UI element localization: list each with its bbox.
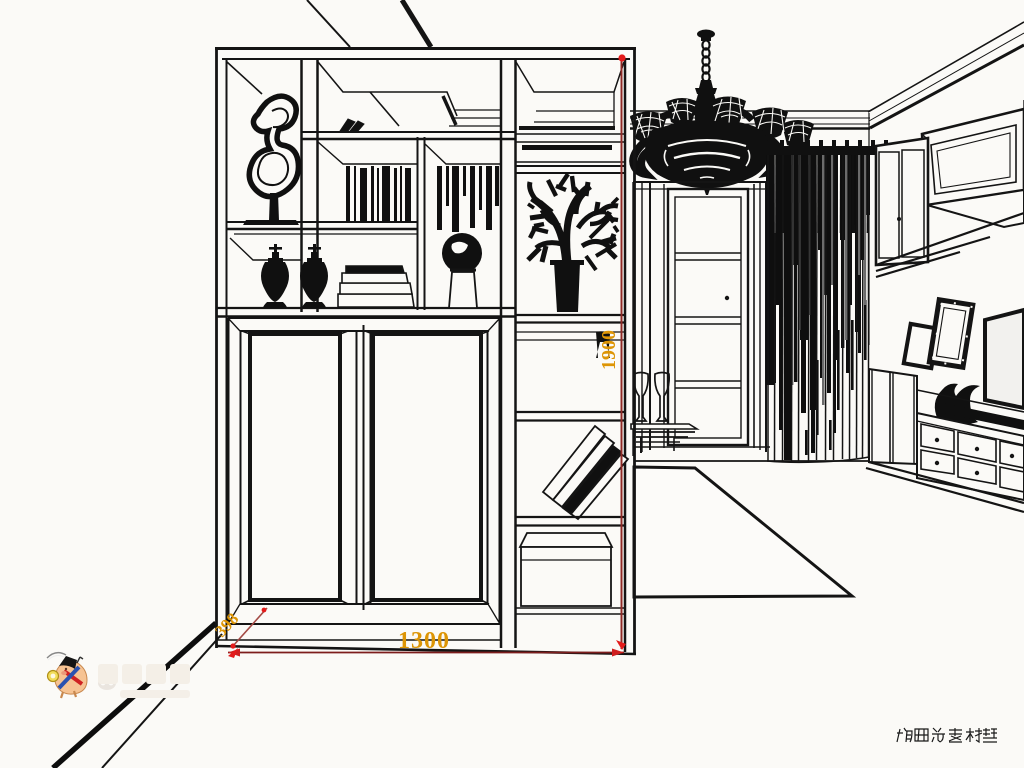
svg-text:1300: 1300 bbox=[398, 628, 450, 654]
svg-text:1900: 1900 bbox=[598, 330, 620, 370]
